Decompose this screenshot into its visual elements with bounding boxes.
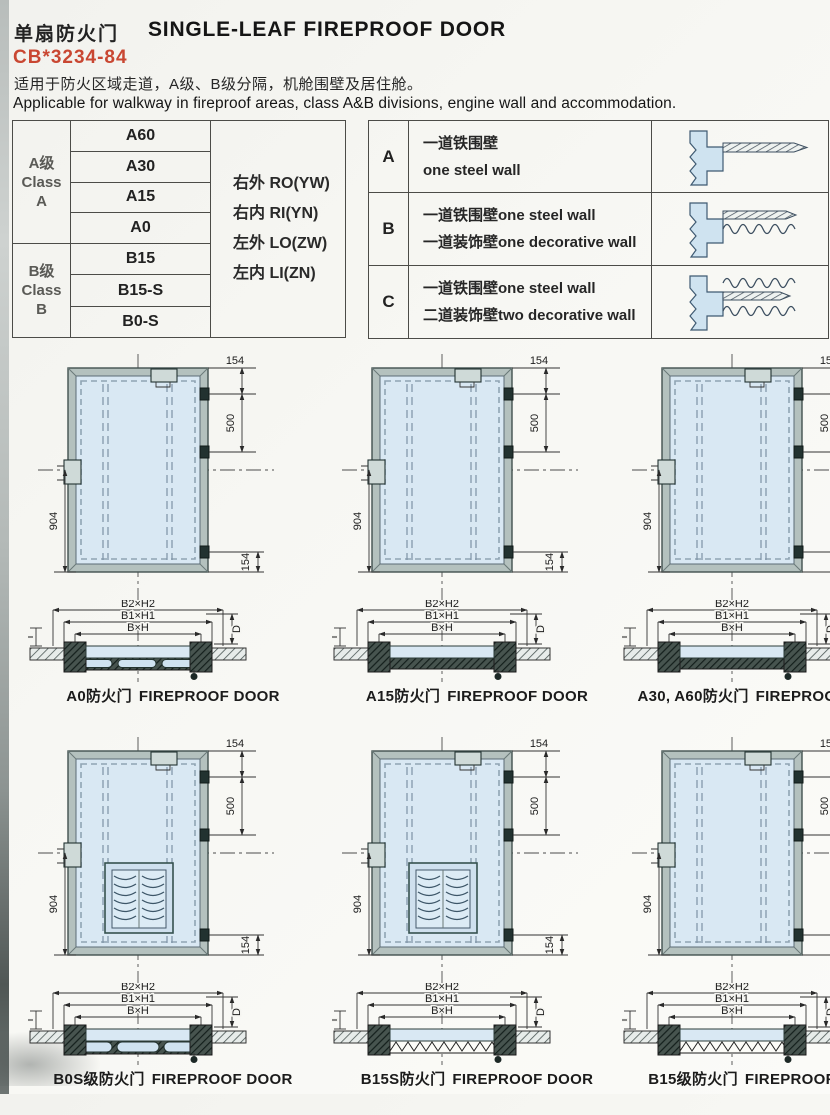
door-closer-detail [191, 673, 198, 680]
door-leaf [670, 759, 794, 947]
frame-profile-right [190, 1025, 212, 1055]
class-b-cell: B级 Class B [13, 244, 71, 338]
section-core-mineral-wool [666, 1040, 798, 1053]
louver-vent [105, 863, 173, 933]
bulkhead-right [806, 1031, 830, 1043]
frame-profile-left [658, 642, 680, 672]
leaf-section [390, 646, 494, 658]
dim-bottom-inset: 154 [544, 936, 556, 954]
orientation-item: 右内 RI(YN) [233, 199, 345, 229]
scanned-catalog-page: { "header": { "title_cn": "单扇防火门", "titl… [0, 0, 830, 1094]
class-a-cell: A级 Class A [13, 121, 71, 244]
figure-caption-en: FIREPROOF DOOR [756, 688, 830, 705]
door-section-drawing: B2×H2 B1×H1 B×H D T [28, 983, 318, 1067]
top-latch [745, 369, 771, 382]
door-closer-detail [785, 673, 792, 680]
frame-profile-right [494, 1025, 516, 1055]
door-handle [368, 843, 385, 867]
hinge-top [504, 388, 513, 400]
dim-depth-label: D [535, 1008, 547, 1016]
door-closer-detail [495, 673, 502, 680]
wall-desc-line2: 一道装饰壁one decorative wall [423, 229, 651, 256]
door-section-drawing: B2×H2 B1×H1 B×H D T [28, 600, 318, 684]
hinge-top [200, 388, 209, 400]
frame-profile-left [64, 642, 86, 672]
page-title-en: SINGLE-LEAF FIREPROOF DOOR [148, 18, 506, 42]
class-b-label-en2: B [13, 300, 70, 319]
dim-clear-label: B×H [431, 1005, 453, 1017]
hinge-middle [200, 829, 209, 841]
door-leaf [76, 376, 200, 564]
dim-thickness-label: T [622, 633, 630, 640]
figure-caption-en: FIREPROOF DOOR [745, 1071, 830, 1088]
dim-depth-label: D [231, 625, 243, 633]
dim-bottom-inset: 154 [544, 553, 556, 571]
section-core-hatch [376, 658, 508, 669]
wall-section-cell [652, 193, 829, 266]
section-core-hatch-panels [72, 657, 204, 670]
door-closer-detail [785, 1056, 792, 1063]
dim-handle-height: 904 [352, 512, 364, 530]
door-figure: 154 500 154 904 B2×H2 [622, 735, 830, 1089]
dim-thickness-label: T [332, 1016, 340, 1023]
dim-clear-label: B×H [127, 1005, 149, 1017]
fire-rating-table: A级 Class A A60 右外 RO(YW) 右内 RI(YN) 左外 LO… [12, 120, 346, 338]
figure-caption-cn: A30, A60防火门 [638, 688, 749, 705]
hinge-bottom [794, 929, 803, 941]
dim-hinge-spacing: 500 [225, 414, 237, 432]
wall-type-key: B [369, 193, 409, 266]
dim-thickness-label: T [622, 1016, 630, 1023]
figure-caption-en: FIREPROOF DOOR [139, 688, 280, 705]
wall-desc-line2: one steel wall [423, 157, 651, 184]
figure-caption-en: FIREPROOF DOOR [452, 1071, 593, 1088]
dimension-right-bottom: 154 [512, 552, 568, 572]
frame-profile-left [64, 1025, 86, 1055]
hinge-middle [200, 446, 209, 458]
figure-caption-cn: A0防火门 [66, 688, 132, 705]
table-row: A 一道铁围壁 one steel wall [369, 121, 829, 193]
wall-desc-line1: 一道铁围壁one steel wall [423, 202, 651, 229]
wall-section-drawing-one-steel [660, 126, 820, 188]
door-section-drawing: B2×H2 B1×H1 B×H D T [622, 983, 830, 1067]
rating-cell: B15 [71, 244, 211, 275]
rating-cell: A30 [71, 151, 211, 182]
wall-section-cell [652, 121, 829, 193]
dimension-right-top: 154 500 [208, 738, 256, 835]
description-cn: 适用于防火区域走道，A级、B级分隔，机舱围壁及居住舱。 [14, 73, 423, 94]
dim-thickness-label: T [28, 633, 36, 640]
dimension-right-top: 154 500 [512, 738, 560, 835]
figure-caption-cn: A15防火门 [366, 688, 440, 705]
dim-outer-label: B2×H2 [715, 600, 749, 610]
dim-hinge-spacing: 500 [529, 414, 541, 432]
orientation-item: 右外 RO(YW) [233, 169, 345, 199]
dim-outer-label: B2×H2 [121, 983, 155, 993]
bulkhead-right [212, 648, 246, 660]
table-row: B 一道铁围壁one steel wall 一道装饰壁one decorativ… [369, 193, 829, 266]
dim-top-inset: 154 [226, 355, 244, 367]
door-handle [368, 460, 385, 484]
dim-handle-height: 904 [642, 895, 654, 913]
class-a-label-cn: A级 [13, 154, 70, 173]
dimension-right-bottom: 154 [208, 552, 264, 572]
rating-cell: A0 [71, 213, 211, 244]
frame-profile-right [494, 642, 516, 672]
dimension-right-bottom: 154 [802, 935, 830, 955]
top-latch [151, 369, 177, 382]
door-figure: 154 500 154 904 B2×H2 [332, 352, 622, 706]
dim-clear-label: B×H [721, 622, 743, 634]
door-section-drawing: B2×H2 B1×H1 B×H D T [332, 983, 622, 1067]
figure-row-class-a: 154 500 154 904 B2×H2 [0, 352, 830, 732]
wall-section-drawing-steel-two-decorative [660, 271, 820, 333]
wall-desc-line1: 一道铁围壁one steel wall [423, 275, 651, 302]
page-title-cn: 单扇防火门 [14, 19, 119, 46]
figure-caption-cn: B0S级防火门 [53, 1071, 144, 1088]
dim-outer-label: B2×H2 [425, 600, 459, 610]
figure-caption-cn: B15S防火门 [361, 1071, 446, 1088]
wall-type-desc: 一道铁围壁one steel wall 二道装饰壁two decorative … [409, 266, 652, 339]
dim-depth-label: D [231, 1008, 243, 1016]
bulkhead-right [516, 648, 550, 660]
door-handle [64, 843, 81, 867]
bulkhead-right [212, 1031, 246, 1043]
dim-thickness-label: T [332, 633, 340, 640]
top-latch [745, 752, 771, 765]
dim-hinge-spacing: 500 [819, 414, 830, 432]
standard-number: CB*3234-84 [13, 47, 128, 69]
door-handle [64, 460, 81, 484]
dimension-right-top: 154 500 [208, 355, 256, 452]
bulkhead-left [30, 1031, 64, 1043]
table-row: C 一道铁围壁one steel wall 二道装饰壁two decorativ… [369, 266, 829, 339]
dim-clear-label: B×H [721, 1005, 743, 1017]
dim-hinge-spacing: 500 [225, 797, 237, 815]
class-a-label-en1: Class [13, 173, 70, 192]
orientation-item: 左外 LO(ZW) [233, 229, 345, 259]
door-figure: 154 500 154 904 [28, 735, 318, 1089]
door-handle [658, 843, 675, 867]
section-core-hatch [666, 658, 798, 669]
door-elevation-drawing: 154 500 154 904 [28, 735, 318, 985]
dim-frame-label: B1×H1 [425, 610, 459, 622]
door-leaf [380, 376, 504, 564]
bulkhead-left [624, 648, 658, 660]
class-a-label-en2: A [13, 192, 70, 211]
figure-caption-en: FIREPROOF DOOR [152, 1071, 293, 1088]
dim-handle-height: 904 [642, 512, 654, 530]
hinge-bottom [504, 929, 513, 941]
bulkhead-left [334, 1031, 368, 1043]
hinge-bottom [200, 546, 209, 558]
hinge-top [794, 771, 803, 783]
leaf-section [86, 646, 190, 658]
wall-desc-line1: 一道铁围壁 [423, 130, 651, 157]
dimension-right-top: 154 500 [512, 355, 560, 452]
bulkhead-left [624, 1031, 658, 1043]
orientation-item: 左内 LI(ZN) [233, 259, 345, 289]
dim-top-inset: 154 [530, 738, 548, 750]
dim-handle-height: 904 [48, 895, 60, 913]
figure-caption: A30, A60防火门FIREPROOF DOOR [622, 685, 830, 706]
top-latch [455, 369, 481, 382]
bulkhead-right [516, 1031, 550, 1043]
leaf-section [680, 646, 784, 658]
hinge-middle [794, 829, 803, 841]
frame-profile-right [784, 1025, 806, 1055]
hinge-middle [794, 446, 803, 458]
hinge-bottom [200, 929, 209, 941]
wall-desc-line2: 二道装饰壁two decorative wall [423, 302, 651, 329]
dimension-right-bottom: 154 [208, 935, 264, 955]
wall-type-key: A [369, 121, 409, 193]
door-elevation-drawing: 154 500 154 904 [332, 735, 622, 985]
door-figure: 154 500 154 904 B2×H2 [28, 352, 318, 706]
figure-caption: A15防火门FIREPROOF DOOR [332, 685, 622, 706]
figure-caption-cn: B15级防火门 [648, 1071, 738, 1088]
hinge-top [200, 771, 209, 783]
door-elevation-drawing: 154 500 154 904 [622, 352, 830, 602]
wall-arrangement-table: A 一道铁围壁 one steel wall B 一道铁围壁one steel … [368, 120, 829, 339]
rating-cell: B0-S [71, 306, 211, 337]
door-figure: 154 500 154 904 B2×H2 [622, 352, 830, 706]
dim-handle-height: 904 [48, 512, 60, 530]
dim-handle-height: 904 [352, 895, 364, 913]
dim-frame-label: B1×H1 [715, 610, 749, 622]
wall-type-desc: 一道铁围壁one steel wall 一道装饰壁one decorative … [409, 193, 652, 266]
dimension-right-top: 154 500 [802, 738, 830, 835]
dim-outer-label: B2×H2 [425, 983, 459, 993]
dim-frame-label: B1×H1 [121, 610, 155, 622]
leaf-section [390, 1029, 494, 1041]
rating-cell: B15-S [71, 275, 211, 306]
hinge-middle [504, 829, 513, 841]
class-b-label-en1: Class [13, 281, 70, 300]
door-section-drawing: B2×H2 B1×H1 B×H D T [332, 600, 622, 684]
table-row: A级 Class A A60 右外 RO(YW) 右内 RI(YN) 左外 LO… [13, 121, 346, 152]
door-leaf [670, 376, 794, 564]
hinge-bottom [794, 546, 803, 558]
figure-caption: B15级防火门FIREPROOF DOOR [622, 1068, 830, 1089]
top-latch [455, 752, 481, 765]
top-latch [151, 752, 177, 765]
dim-hinge-spacing: 500 [529, 797, 541, 815]
door-handle [658, 460, 675, 484]
louver-vent [409, 863, 477, 933]
frame-profile-right [784, 642, 806, 672]
dim-hinge-spacing: 500 [819, 797, 830, 815]
wall-type-desc: 一道铁围壁 one steel wall [409, 121, 652, 193]
bulkhead-right [806, 648, 830, 660]
dim-thickness-label: T [28, 1016, 36, 1023]
orientation-list: 右外 RO(YW) 右内 RI(YN) 左外 LO(ZW) 左内 LI(ZN) [211, 121, 346, 338]
dim-bottom-inset: 154 [240, 553, 252, 571]
dim-depth-label: D [825, 625, 830, 633]
wall-section-cell [652, 266, 829, 339]
leaf-section [86, 1029, 190, 1041]
door-closer-detail [495, 1056, 502, 1063]
dim-depth-label: D [825, 1008, 830, 1016]
door-elevation-drawing: 154 500 154 904 [28, 352, 318, 602]
frame-profile-left [658, 1025, 680, 1055]
door-elevation-drawing: 154 500 154 904 [332, 352, 622, 602]
dim-top-inset: 154 [226, 738, 244, 750]
hinge-bottom [504, 546, 513, 558]
rating-cell: A60 [71, 121, 211, 152]
dim-clear-label: B×H [127, 622, 149, 634]
bulkhead-left [334, 648, 368, 660]
frame-profile-left [368, 642, 390, 672]
dim-top-inset: 154 [820, 738, 830, 750]
dim-outer-label: B2×H2 [715, 983, 749, 993]
door-elevation-drawing: 154 500 154 904 [622, 735, 830, 985]
class-b-label-cn: B级 [13, 262, 70, 281]
frame-profile-left [368, 1025, 390, 1055]
frame-profile-right [190, 642, 212, 672]
dim-depth-label: D [535, 625, 547, 633]
bulkhead-left [30, 648, 64, 660]
section-core-mineral-wool [376, 1040, 508, 1053]
hinge-middle [504, 446, 513, 458]
figure-caption: B15S防火门FIREPROOF DOOR [332, 1068, 622, 1089]
door-figure: 154 500 154 904 [332, 735, 622, 1089]
hinge-top [794, 388, 803, 400]
description-en: Applicable for walkway in fireproof area… [13, 95, 676, 113]
dim-top-inset: 154 [820, 355, 830, 367]
wall-type-key: C [369, 266, 409, 339]
dim-frame-label: B1×H1 [121, 993, 155, 1005]
section-core-panels [72, 1040, 204, 1054]
figure-caption: A0防火门FIREPROOF DOOR [28, 685, 318, 706]
door-closer-detail [191, 1056, 198, 1063]
dim-bottom-inset: 154 [240, 936, 252, 954]
figure-row-class-b: 154 500 154 904 [0, 735, 830, 1115]
hinge-top [504, 771, 513, 783]
dim-clear-label: B×H [431, 622, 453, 634]
dimension-right-bottom: 154 [512, 935, 568, 955]
dim-top-inset: 154 [530, 355, 548, 367]
dim-outer-label: B2×H2 [121, 600, 155, 610]
wall-section-drawing-steel-one-decorative [660, 198, 820, 260]
figure-caption: B0S级防火门FIREPROOF DOOR [28, 1068, 318, 1089]
dim-frame-label: B1×H1 [425, 993, 459, 1005]
dim-frame-label: B1×H1 [715, 993, 749, 1005]
dimension-right-top: 154 500 [802, 355, 830, 452]
rating-cell: A15 [71, 182, 211, 213]
leaf-section [680, 1029, 784, 1041]
dimension-right-bottom: 154 [802, 552, 830, 572]
door-section-drawing: B2×H2 B1×H1 B×H D T [622, 600, 830, 684]
figure-caption-en: FIREPROOF DOOR [447, 688, 588, 705]
